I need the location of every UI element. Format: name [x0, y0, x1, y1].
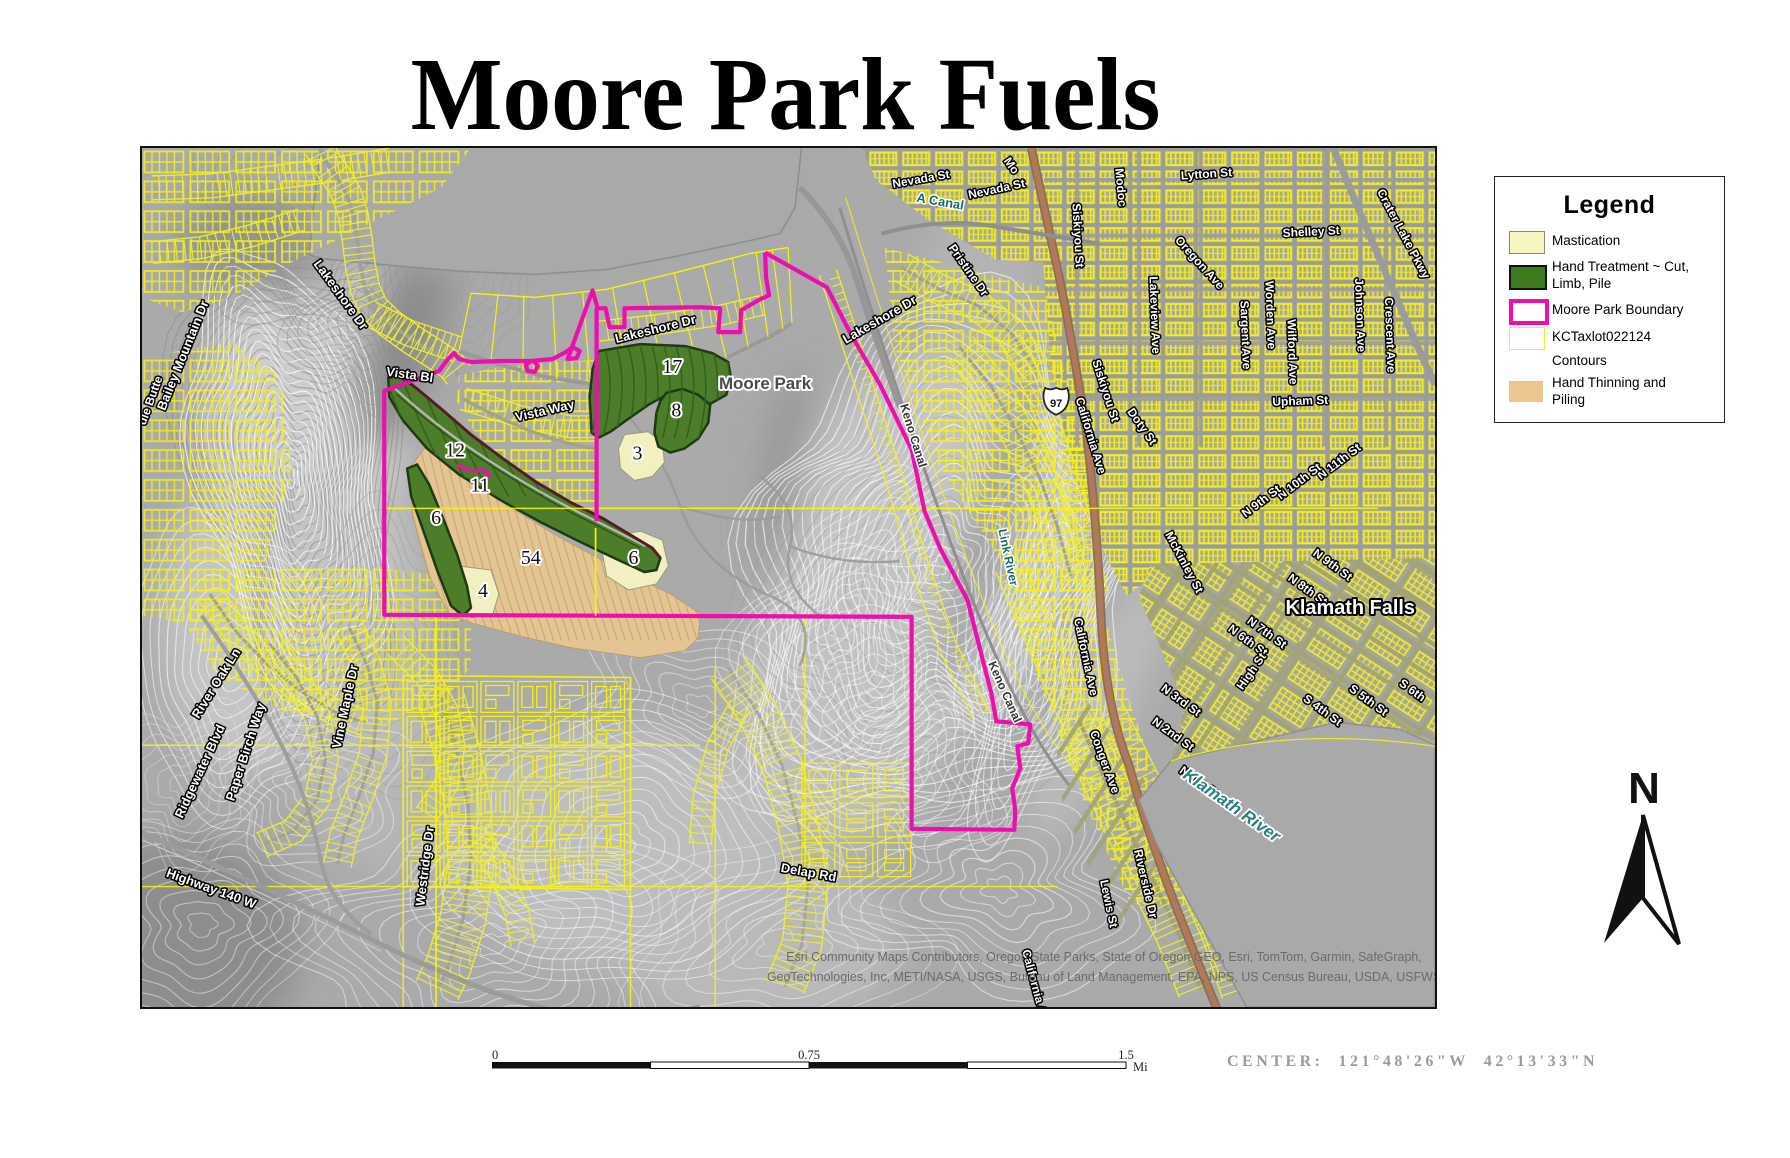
svg-text:Johnson Ave: Johnson Ave	[1352, 278, 1369, 353]
svg-text:Moore Park: Moore Park	[719, 374, 812, 393]
svg-text:Mi: Mi	[1133, 1060, 1148, 1074]
svg-text:8: 8	[671, 400, 681, 422]
svg-text:0.75: 0.75	[798, 1048, 820, 1062]
svg-text:Wilford Ave: Wilford Ave	[1284, 319, 1300, 385]
svg-text:4: 4	[478, 580, 488, 602]
svg-text:97: 97	[1050, 398, 1062, 410]
svg-text:6: 6	[431, 507, 441, 529]
svg-text:17: 17	[662, 356, 682, 378]
svg-text:Upham St: Upham St	[1272, 393, 1328, 409]
svg-text:0: 0	[492, 1048, 498, 1062]
svg-text:N: N	[1628, 764, 1660, 813]
svg-text:6: 6	[628, 547, 638, 569]
svg-text:11: 11	[470, 474, 489, 496]
svg-text:1.5: 1.5	[1118, 1048, 1134, 1062]
svg-text:Klamath Falls: Klamath Falls	[1285, 597, 1415, 619]
svg-text:12: 12	[445, 440, 465, 462]
svg-text:Lakeview Ave: Lakeview Ave	[1147, 276, 1164, 354]
svg-text:Esri Community Maps Contributo: Esri Community Maps Contributors, Oregon…	[786, 950, 1422, 964]
svg-text:Shelley St: Shelley St	[1282, 223, 1340, 240]
svg-text:54: 54	[521, 547, 541, 569]
svg-text:GeoTechnologies, Inc, METI/NAS: GeoTechnologies, Inc, METI/NASA, USGS, B…	[767, 970, 1437, 984]
svg-text:Sargent Ave: Sargent Ave	[1237, 300, 1253, 370]
svg-text:Worden Ave: Worden Ave	[1262, 281, 1278, 350]
svg-text:Crescent Ave: Crescent Ave	[1382, 297, 1399, 373]
svg-text:3: 3	[632, 443, 642, 465]
